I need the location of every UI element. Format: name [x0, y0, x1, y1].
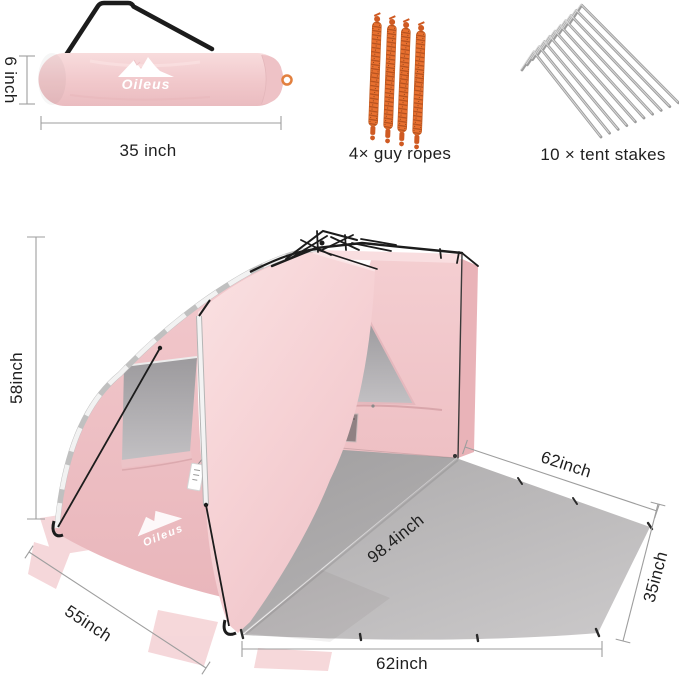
product-dimensions-image: Oileus [0, 0, 679, 680]
bag-height-label: 6 inch [0, 56, 20, 103]
bag-handle [66, 3, 212, 55]
guy-ropes-caption: 4× guy ropes [349, 144, 451, 164]
bag-ring [283, 76, 292, 85]
rope-item [412, 22, 426, 150]
tent-illustration: Oileus [25, 231, 665, 674]
carry-bag: Oileus [19, 3, 292, 130]
rope-item [368, 13, 382, 141]
guy-ropes [368, 13, 426, 150]
tent-stakes-caption: 10 × tent stakes [540, 145, 665, 165]
illustration-canvas: Oileus [0, 0, 679, 680]
tent-stakes [521, 4, 678, 137]
rope-item [383, 16, 397, 144]
bag-length-label: 35 inch [120, 141, 177, 161]
mat-bottom-edge-label: 62inch [376, 654, 428, 674]
rope-item [397, 19, 411, 147]
bag-logo-text: Oileus [122, 76, 171, 92]
side-mesh-window [122, 357, 197, 461]
tent-height-label: 58inch [7, 352, 27, 404]
